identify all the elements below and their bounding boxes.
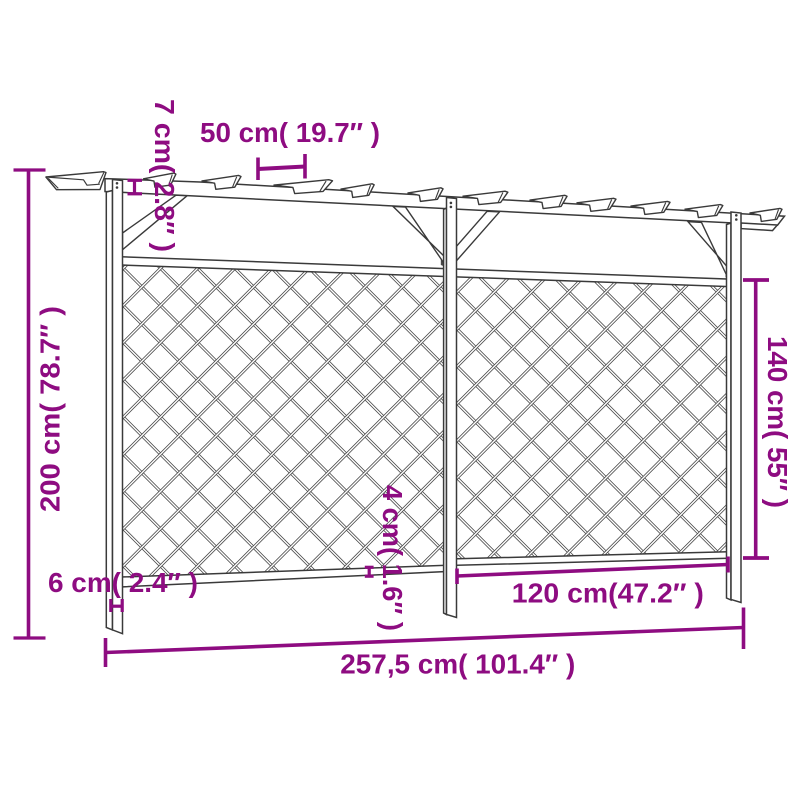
svg-text:140 cm( 55″ ): 140 cm( 55″ ) <box>762 336 793 508</box>
svg-text:120 cm(47.2″ ): 120 cm(47.2″ ) <box>512 578 704 609</box>
svg-text:4 cm( 1.6″ ): 4 cm( 1.6″ ) <box>377 485 408 631</box>
svg-text:257,5 cm( 101.4″ ): 257,5 cm( 101.4″ ) <box>340 649 575 680</box>
svg-text:50 cm( 19.7″ ): 50 cm( 19.7″ ) <box>200 117 380 148</box>
svg-text:6 cm( 2.4″ ): 6 cm( 2.4″ ) <box>48 567 198 598</box>
svg-text:7 cm( 2.8″ ): 7 cm( 2.8″ ) <box>149 99 180 252</box>
svg-text:200 cm( 78.7″ ): 200 cm( 78.7″ ) <box>35 306 66 512</box>
